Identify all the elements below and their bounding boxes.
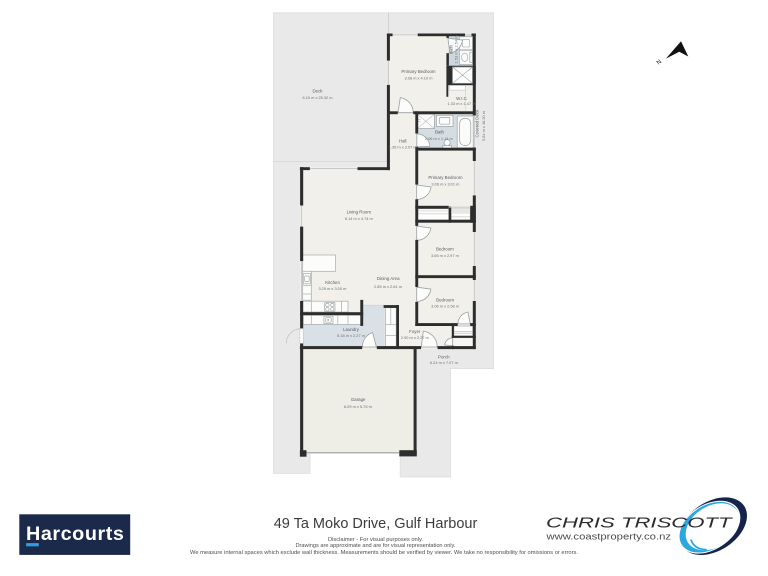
svg-text:Dining Area: Dining Area xyxy=(377,276,400,281)
svg-text:49 Ta Moko Drive, Gulf Harbour: 49 Ta Moko Drive, Gulf Harbour xyxy=(274,516,478,532)
svg-text:5.18 m x 2.27 m: 5.18 m x 2.27 m xyxy=(337,333,365,338)
svg-text:N: N xyxy=(656,59,663,66)
svg-text:We measure internal spaces whi: We measure internal spaces which exclude… xyxy=(190,550,578,556)
svg-text:6.09 m x 5.75 m: 6.09 m x 5.75 m xyxy=(344,404,372,409)
svg-text:Kitchen: Kitchen xyxy=(325,280,340,285)
svg-text:Bedroom: Bedroom xyxy=(436,298,454,303)
svg-text:Hall: Hall xyxy=(399,139,407,144)
svg-text:Primary Bedroom: Primary Bedroom xyxy=(401,69,436,74)
svg-text:Primary Bedroom: Primary Bedroom xyxy=(428,175,463,180)
svg-text:6.24 m x 7.07 m: 6.24 m x 7.07 m xyxy=(430,360,458,365)
svg-text:5.84 m x 18.30 m: 5.84 m x 18.30 m xyxy=(481,111,486,141)
svg-text:Harcourts: Harcourts xyxy=(26,523,124,545)
svg-text:6.19 m x 25.32 m: 6.19 m x 25.32 m xyxy=(302,95,332,100)
svg-text:3.06 m x 3.01 m: 3.06 m x 3.01 m xyxy=(431,181,459,186)
svg-text:1.33 m x 1.47 m: 1.33 m x 1.47 m xyxy=(448,101,476,106)
svg-text:Covered Deck: Covered Deck xyxy=(474,109,479,138)
svg-text:3.08 m x 4.10 m: 3.08 m x 4.10 m xyxy=(405,75,433,80)
svg-text:1.35 m x 3.07 m: 1.35 m x 3.07 m xyxy=(389,145,417,150)
svg-text:2.85 m x 2.61 m: 2.85 m x 2.61 m xyxy=(374,284,402,289)
svg-text:Deck: Deck xyxy=(312,89,323,94)
svg-text:6.14 m x 4.74 m: 6.14 m x 4.74 m xyxy=(345,216,373,221)
svg-text:Foyer: Foyer xyxy=(409,329,421,334)
svg-text:Garage: Garage xyxy=(351,397,366,402)
svg-text:3.29 m x 3.00 m: 3.29 m x 3.00 m xyxy=(318,286,346,291)
svg-text:CHRIS TRISCOTT: CHRIS TRISCOTT xyxy=(546,514,734,531)
svg-text:3.06 m x 2.97 m: 3.06 m x 2.97 m xyxy=(431,253,459,258)
svg-text:3.06 m x 2.58 m: 3.06 m x 2.58 m xyxy=(431,303,459,308)
svg-text:Laundry: Laundry xyxy=(343,327,360,332)
svg-text:Living Room: Living Room xyxy=(347,209,372,214)
svg-text:2.90 m x 2.27 m: 2.90 m x 2.27 m xyxy=(401,335,429,340)
svg-text:Drawings are approximate and a: Drawings are approximate and are for vis… xyxy=(296,543,456,549)
svg-text:2.06 m x 1.14 m: 2.06 m x 1.14 m xyxy=(425,136,453,141)
svg-text:1.53 m x 2.54 m: 1.53 m x 2.54 m xyxy=(454,36,459,64)
svg-text:Bath: Bath xyxy=(435,130,445,135)
svg-text:www.coastproperty.co.nz: www.coastproperty.co.nz xyxy=(545,531,671,541)
svg-text:Bedroom: Bedroom xyxy=(436,247,454,252)
